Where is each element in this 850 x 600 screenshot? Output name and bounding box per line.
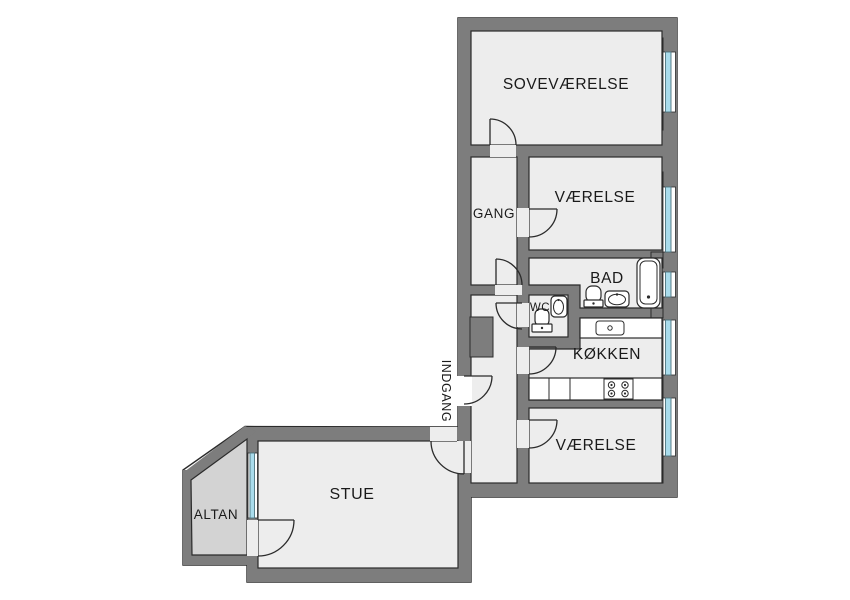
- toilet-bad-icon: [584, 286, 603, 307]
- outer-wall-top: [458, 18, 677, 31]
- wall-stue-east: [458, 473, 471, 582]
- opening-vaerelse-top: [517, 208, 529, 237]
- opening-vaerelse-bottom: [517, 420, 529, 448]
- room-label-gang: GANG: [473, 206, 515, 221]
- opening-wc: [517, 303, 529, 327]
- room-label-wc: WC: [530, 302, 550, 314]
- room-label-sovevaerelse: SOVEVÆRELSE: [503, 76, 629, 93]
- window-koekken: [663, 320, 676, 375]
- room-label-stue: STUE: [329, 486, 374, 503]
- wall-stue-north-east: [456, 427, 471, 441]
- window-stue-altan: [248, 453, 258, 518]
- room-label-vaerelse-bottom: VÆRELSE: [556, 437, 637, 454]
- floor-plan-svg: SOVEVÆRELSE VÆRELSE GANG BAD WC KØKKEN V…: [0, 0, 850, 600]
- kitchen-counter-with-stove: [529, 378, 662, 400]
- room-label-bad: BAD: [590, 270, 624, 287]
- entrance-label-indgang: INDGANG: [439, 360, 453, 423]
- kitchen-sink-counter: [580, 318, 662, 338]
- window-sovevaerelse: [663, 52, 676, 112]
- window-vaerelse-top: [663, 187, 676, 252]
- washbasin-bad-icon: [605, 291, 629, 307]
- window-bad: [663, 272, 676, 297]
- chimney-duct-block: [470, 317, 493, 357]
- washbasin-wc-icon: [551, 296, 567, 317]
- wall-stue-north: [247, 427, 430, 441]
- bathtub-icon: [637, 258, 660, 308]
- floor-gang: [471, 157, 517, 285]
- opening-entrance: [457, 376, 472, 406]
- floor-plan: SOVEVÆRELSE VÆRELSE GANG BAD WC KØKKEN V…: [0, 0, 850, 600]
- wall-vaerelse-top-south: [529, 250, 663, 258]
- wall-koekken-south: [517, 400, 663, 408]
- wall-altan-south: [183, 555, 247, 565]
- wall-stue-south: [247, 568, 471, 582]
- outer-wall-bottom-wing: [468, 483, 677, 497]
- opening-stue: [430, 427, 457, 441]
- floor-stue: [258, 441, 458, 568]
- room-label-vaerelse-top: VÆRELSE: [555, 189, 636, 206]
- room-label-altan: ALTAN: [194, 507, 239, 522]
- opening-gang: [495, 285, 522, 295]
- opening-altan: [247, 520, 258, 556]
- room-label-koekken: KØKKEN: [573, 346, 641, 363]
- outer-wall-left: [458, 18, 471, 376]
- opening-koekken: [517, 347, 529, 374]
- opening-sovevaerelse: [490, 145, 516, 157]
- window-vaerelse-bottom: [663, 398, 676, 456]
